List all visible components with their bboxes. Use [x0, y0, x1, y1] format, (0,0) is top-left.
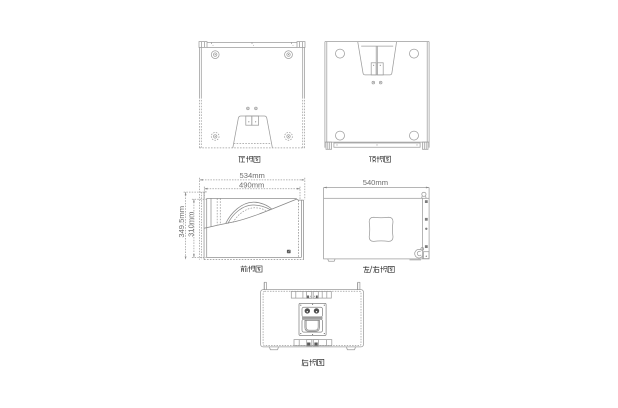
- svg-text:310mm: 310mm: [186, 212, 195, 237]
- svg-text:534mm: 534mm: [240, 171, 265, 180]
- svg-text:540mm: 540mm: [363, 178, 388, 187]
- svg-text:490mm: 490mm: [239, 180, 264, 189]
- svg-text:349.5mm: 349.5mm: [177, 206, 186, 238]
